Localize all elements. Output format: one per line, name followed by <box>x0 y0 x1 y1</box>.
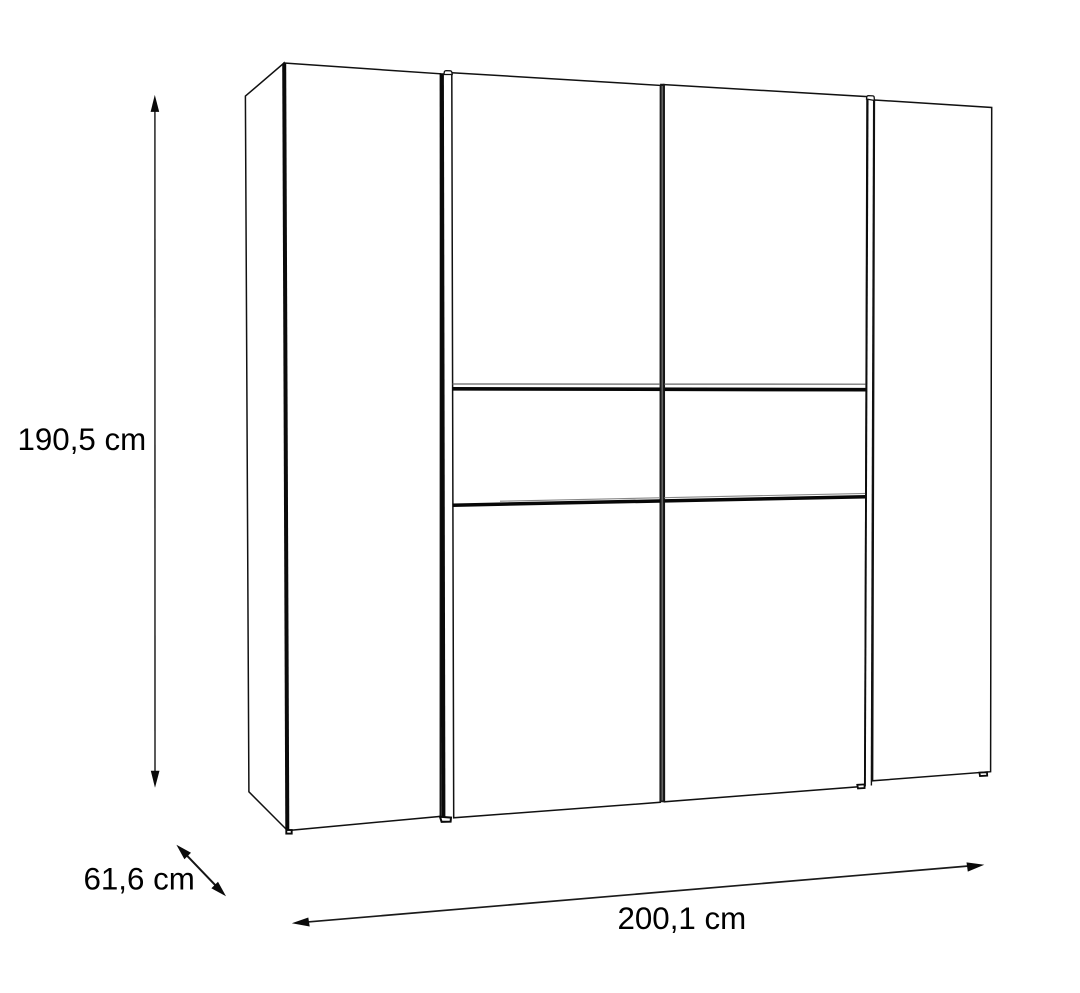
svg-text:61,6 cm: 61,6 cm <box>84 862 195 897</box>
svg-text:200,1 cm: 200,1 cm <box>618 901 747 936</box>
svg-text:190,5 cm: 190,5 cm <box>18 422 147 457</box>
